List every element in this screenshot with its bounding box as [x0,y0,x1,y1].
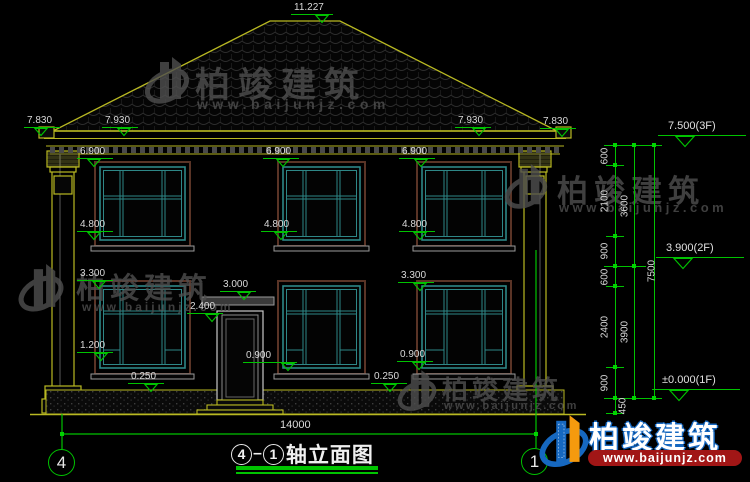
dim-tick [632,396,636,400]
level-line [652,389,740,390]
dim-tick [613,284,617,288]
elevation-label: 2.400 [190,302,215,312]
elevation-triangle-icon [205,314,219,322]
dim-chain-bar [604,266,646,267]
level-triangle-icon [669,390,689,401]
elevation-triangle-icon [144,384,158,392]
elevation-label: 0.250 [374,372,399,382]
title-dash: – [253,445,262,463]
elevation-triangle-icon [94,353,108,361]
elevation-label: 7.930 [458,116,483,126]
elevation-triangle-icon [413,283,427,291]
dim-tick [613,143,617,147]
title-underline-thick [236,466,378,470]
dim-chain-label: 3600 [620,195,631,217]
elevation-triangle-icon [412,362,426,370]
elevation-triangle-icon [472,128,486,136]
elevation-triangle-icon [87,232,101,240]
elevation-label: 4.800 [402,220,427,230]
dim-chain-label: 2100 [600,190,611,212]
dim-tick [652,396,656,400]
elevation-label: 11.227 [294,3,324,13]
elevation-label: 4.800 [264,220,289,230]
elevation-triangle-icon [383,384,397,392]
dim-chain-label: 900 [600,375,611,392]
elevation-drawing: 柏竣建筑 www.baijunjz.com 柏竣建筑 www.baijunjz.… [0,0,750,482]
title-text: 轴立面图 [286,439,374,469]
dim-chain-line [615,145,616,413]
dim-tick [632,143,636,147]
dim-chain-label: 7500 [647,260,658,282]
dim-chain-label: 3900 [620,321,631,343]
elevation-triangle-icon [555,129,569,137]
level-label: ±0.000(1F) [662,375,716,386]
elevation-label: 7.830 [543,117,568,127]
elevation-label: 4.800 [80,220,105,230]
elevation-triangle-icon [92,281,106,289]
level-line [656,257,744,258]
elevation-triangle-icon [281,363,295,371]
dim-tick [632,264,636,268]
dim-chain-line [634,145,635,398]
elevation-triangle-icon [87,159,101,167]
level-triangle-icon [675,136,695,147]
dim-tick [613,396,617,400]
title-underline-thin [236,472,378,474]
elevation-triangle-icon [34,128,48,136]
elevation-label: 6.900 [80,147,105,157]
level-label: 3.900(2F) [666,243,714,254]
dim-tick [613,163,617,167]
elevation-label: 0.250 [131,372,156,382]
elevation-label: 6.900 [402,147,427,157]
dim-tick [613,365,617,369]
dim-tick [613,234,617,238]
elevation-label: 3.300 [80,269,105,279]
footer-logo-icon [536,413,592,473]
elevation-label: 0.900 [246,351,271,361]
dim-chain-label: 600 [600,148,611,165]
elevation-triangle-icon [276,159,290,167]
elevation-label: 7.930 [105,116,130,126]
elevation-triangle-icon [274,232,288,240]
dim-chain-label: 600 [600,269,611,286]
title-axis-left: 4 [231,444,252,465]
dim-tick [652,143,656,147]
footer-url-banner: www.baijunjz.com [588,450,742,466]
elevation-label: 1.200 [80,341,105,351]
axis-bubble-4: 4 [48,449,75,476]
elevation-triangle-icon [237,292,251,300]
dim-chain-label: 2400 [600,316,611,338]
elevation-triangle-icon [117,128,131,136]
elevation-triangle-icon [413,232,427,240]
dim-chain-label: 900 [600,243,611,260]
elevation-triangle-icon [315,15,329,23]
elevation-label: 3.300 [401,271,426,281]
elevation-label: 7.830 [27,116,52,126]
dim-tick [613,264,617,268]
elevation-label: 6.900 [266,147,291,157]
elevation-label: 3.000 [223,280,248,290]
level-line [658,135,746,136]
elevation-triangle-icon [414,159,428,167]
level-triangle-icon [673,258,693,269]
drawing-title: 4 – 1 轴立面图 [231,439,374,469]
overall-dimension: 14000 [280,419,311,431]
level-label: 7.500(3F) [668,121,716,132]
elevation-label: 0.900 [400,350,425,360]
title-axis-right: 1 [263,444,284,465]
